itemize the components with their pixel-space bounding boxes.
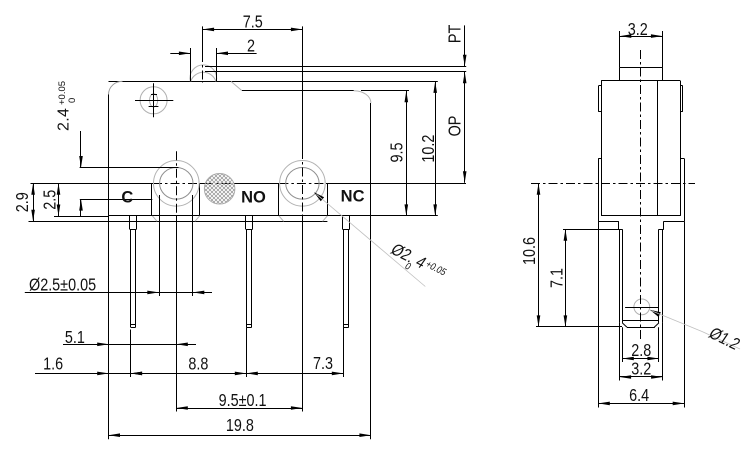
svg-text:PT: PT (445, 25, 465, 43)
svg-text:NO: NO (241, 188, 266, 206)
svg-text:1.6: 1.6 (43, 354, 63, 374)
svg-text:2.9: 2.9 (13, 192, 33, 212)
svg-text:19.8: 19.8 (226, 415, 254, 435)
svg-text:9.5: 9.5 (387, 142, 407, 162)
svg-text:2.8: 2.8 (631, 341, 651, 361)
svg-text:10.6: 10.6 (520, 237, 540, 265)
svg-text:2.5: 2.5 (40, 190, 60, 210)
svg-text:NC: NC (341, 188, 365, 206)
svg-text:7.3: 7.3 (313, 354, 333, 374)
svg-text:10.2: 10.2 (419, 135, 439, 163)
svg-text:5.1: 5.1 (65, 328, 85, 348)
svg-text:3.2: 3.2 (628, 19, 648, 39)
svg-text:2.4: 2.4 (56, 108, 73, 131)
svg-text:9.5±0.1: 9.5±0.1 (219, 391, 267, 411)
svg-text:8.8: 8.8 (188, 354, 208, 374)
svg-text:2: 2 (247, 36, 255, 56)
svg-text:C: C (121, 188, 133, 206)
svg-text:Ø2.5±0.05: Ø2.5±0.05 (29, 275, 96, 295)
svg-text:7.1: 7.1 (547, 268, 567, 288)
svg-text:OP: OP (445, 116, 465, 137)
svg-text:6.4: 6.4 (629, 386, 649, 406)
svg-text:7.5: 7.5 (243, 12, 263, 32)
svg-text:3.2: 3.2 (631, 359, 651, 379)
svg-text:0: 0 (67, 98, 78, 103)
